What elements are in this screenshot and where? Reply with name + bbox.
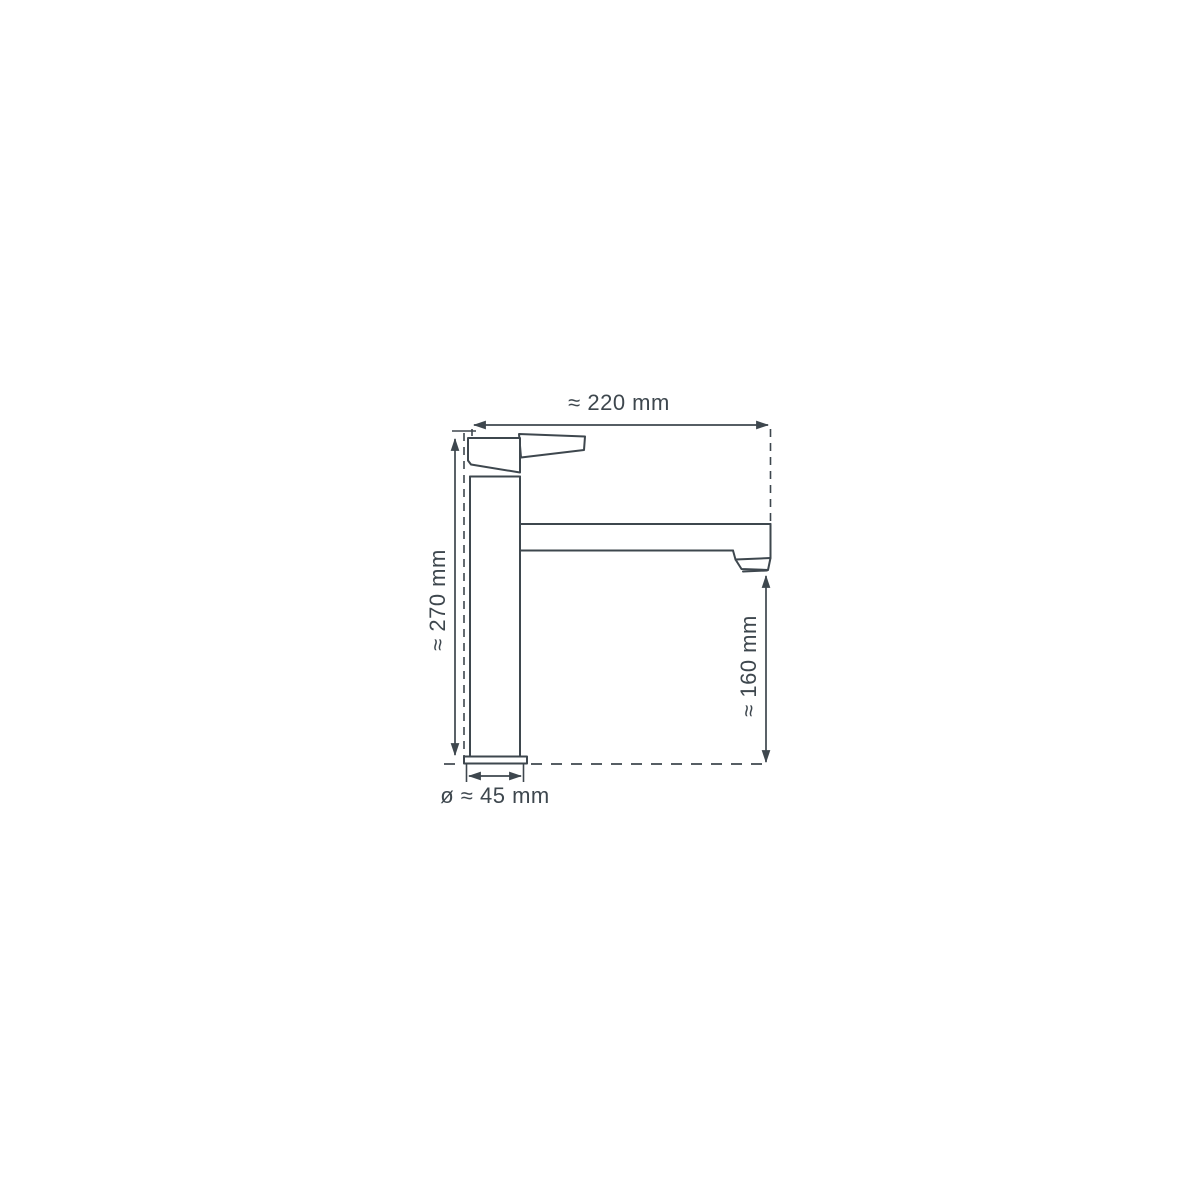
faucet-spout-step bbox=[733, 551, 736, 560]
faucet-handle-housing bbox=[468, 438, 520, 473]
faucet-lever-handle-icon bbox=[519, 434, 585, 458]
faucet-base-plate bbox=[464, 757, 527, 764]
faucet-outline bbox=[464, 434, 771, 764]
faucet-dimension-diagram: ≈ 220 mm ≈ 270 mm ≈ 160 mm ø ≈ 45 mm bbox=[0, 0, 1200, 1200]
faucet-aerator-tip bbox=[736, 558, 771, 570]
dimension-label-width: ≈ 220 mm bbox=[568, 390, 670, 415]
dimension-label-base-diameter: ø ≈ 45 mm bbox=[440, 783, 549, 808]
diagram-canvas: ≈ 220 mm ≈ 270 mm ≈ 160 mm ø ≈ 45 mm bbox=[0, 0, 1200, 1200]
dimension-label-height: ≈ 270 mm bbox=[425, 549, 450, 651]
dimension-label-spout-height: ≈ 160 mm bbox=[736, 615, 761, 717]
faucet-aerator-face bbox=[743, 571, 767, 572]
